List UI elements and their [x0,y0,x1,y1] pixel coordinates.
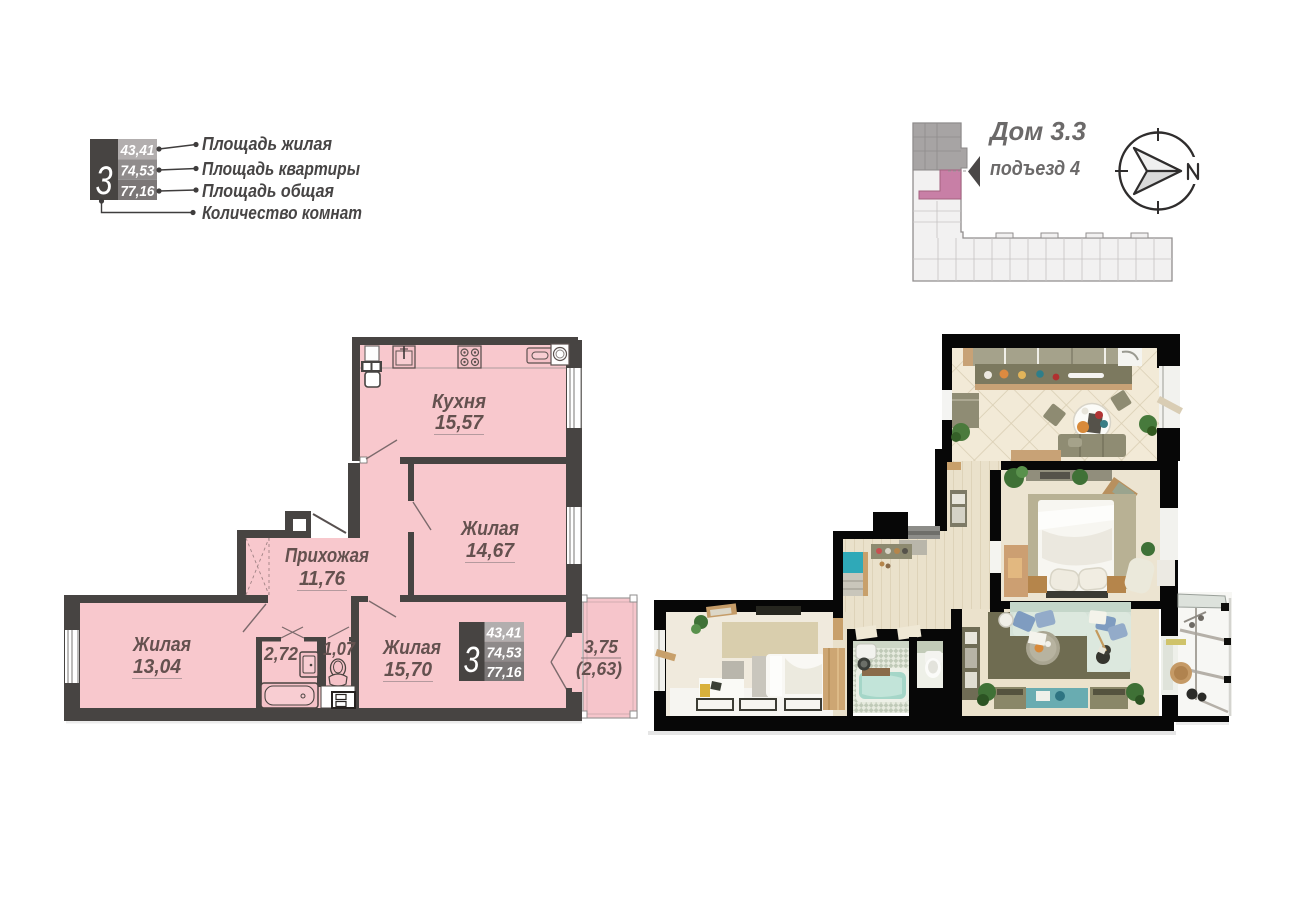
svg-text:Жилая: Жилая [382,637,441,659]
svg-text:43,41: 43,41 [486,625,522,642]
svg-text:11,76: 11,76 [299,568,346,590]
svg-text:Площадь жилая: Площадь жилая [202,134,332,154]
svg-text:Жилая: Жилая [132,634,191,656]
svg-text:43,41: 43,41 [120,142,155,159]
svg-text:77,16: 77,16 [487,664,523,681]
svg-text:14,67: 14,67 [466,540,515,562]
svg-text:Площадь квартиры: Площадь квартиры [202,159,361,179]
svg-text:15,70: 15,70 [384,659,432,681]
svg-text:подъезд 4: подъезд 4 [990,158,1080,180]
svg-text:1,07: 1,07 [323,639,356,659]
svg-text:3: 3 [464,639,480,680]
svg-text:15,57: 15,57 [435,412,484,434]
svg-text:3,75: 3,75 [584,637,619,657]
svg-text:77,16: 77,16 [121,183,156,200]
svg-text:(2,63): (2,63) [576,659,622,679]
svg-text:2,72: 2,72 [263,644,298,664]
svg-text:13,04: 13,04 [133,656,181,678]
svg-text:74,53: 74,53 [121,163,156,180]
svg-text:Количество комнат: Количество комнат [202,203,362,223]
svg-text:Кухня: Кухня [432,391,486,413]
svg-text:74,53: 74,53 [487,645,523,662]
svg-text:Прихожая: Прихожая [285,545,369,567]
svg-text:Площадь общая: Площадь общая [202,181,334,201]
svg-text:Дом 3.3: Дом 3.3 [988,116,1087,146]
svg-text:Жилая: Жилая [460,518,519,540]
svg-text:3: 3 [96,159,113,203]
